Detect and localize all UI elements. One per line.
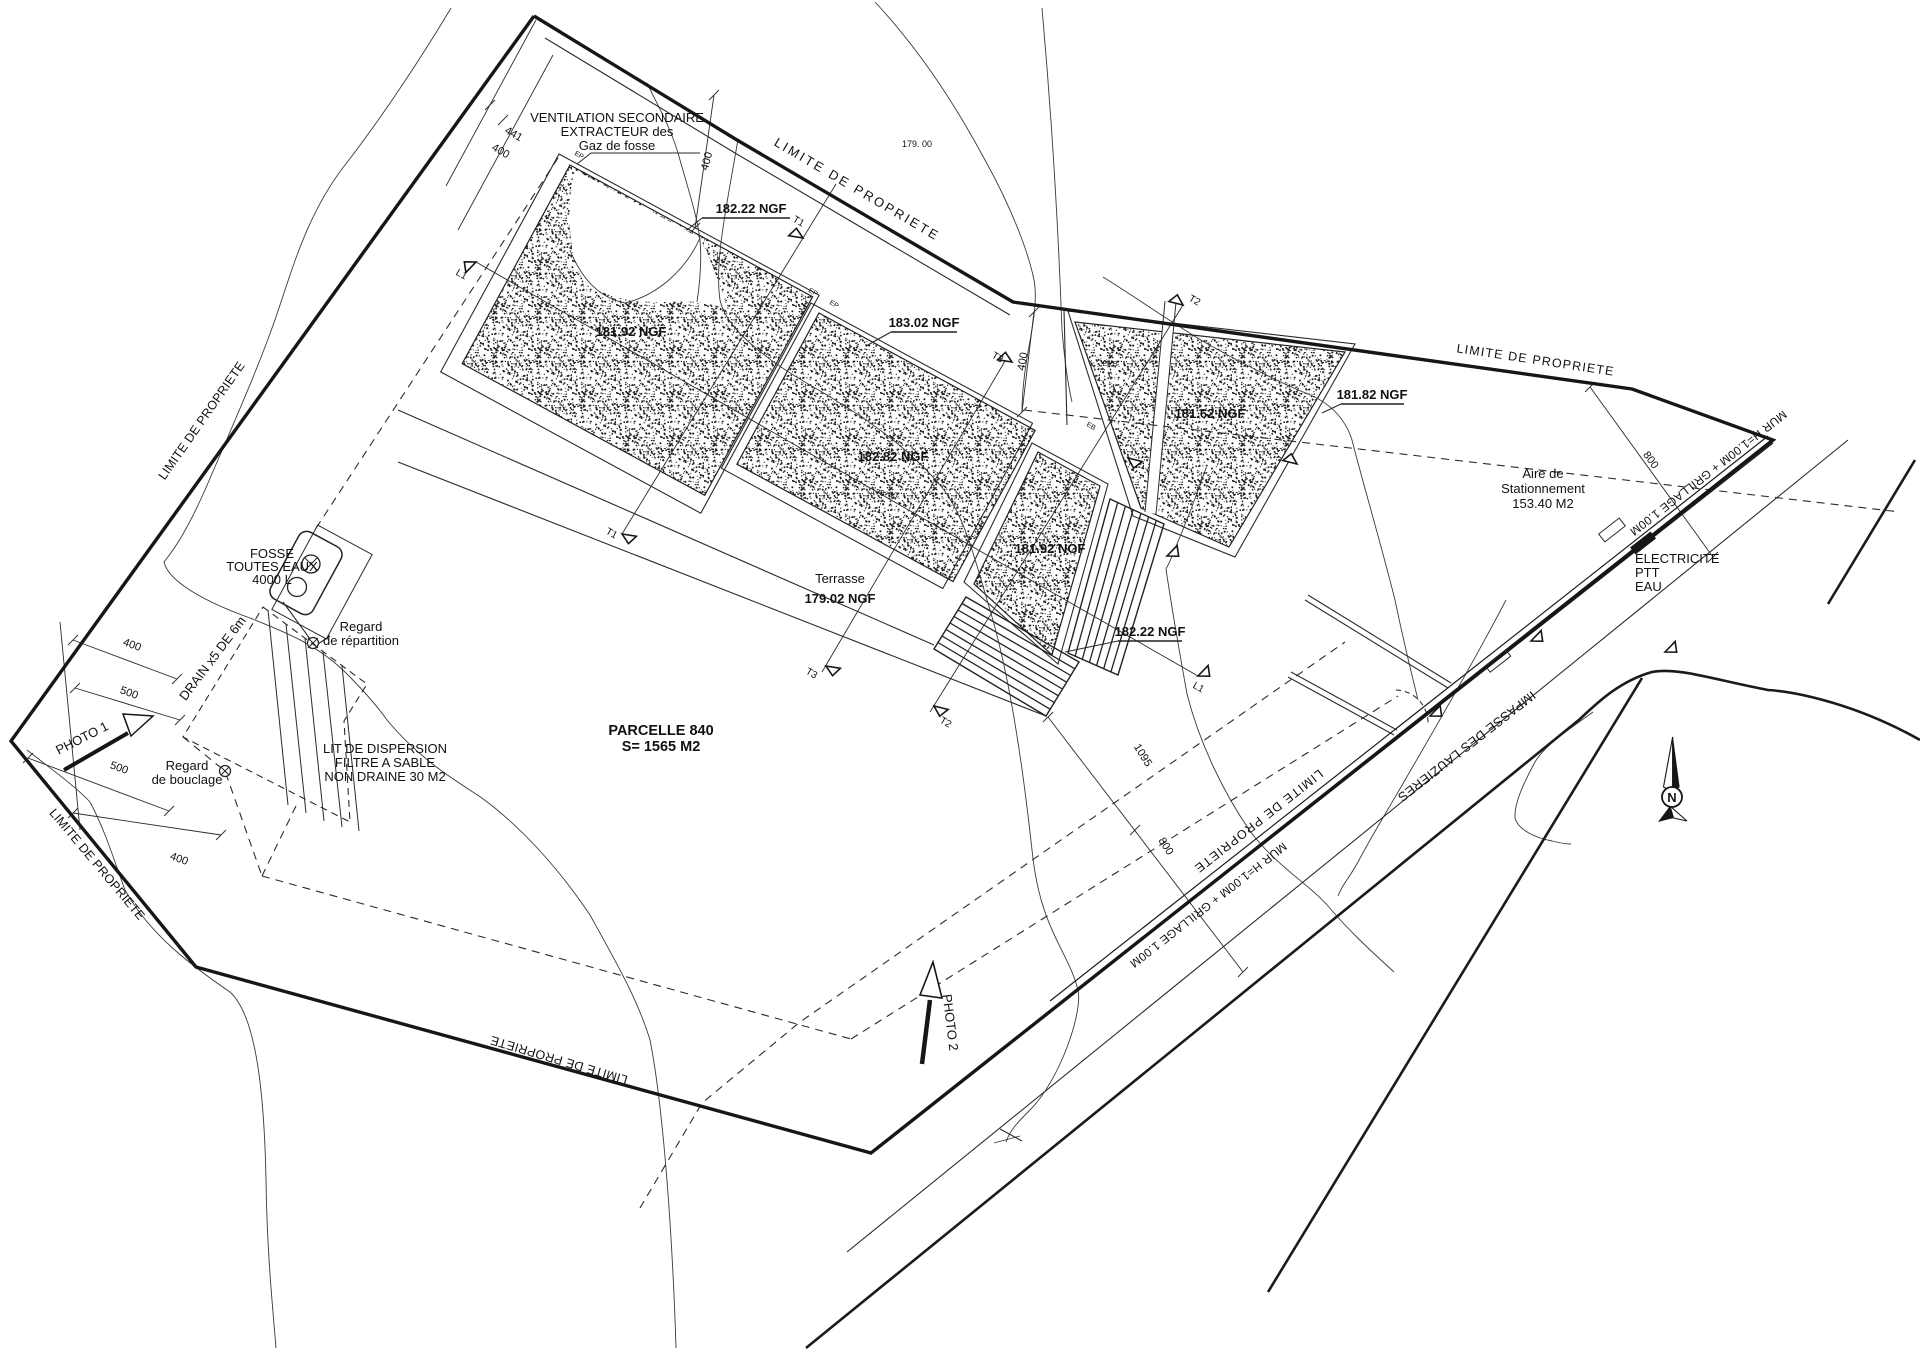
svg-text:183.02 NGF: 183.02 NGF [889, 315, 960, 330]
svg-text:Ep B: Ep B [1102, 361, 1118, 368]
svg-text:179. 00: 179. 00 [902, 139, 932, 149]
svg-text:N: N [1667, 790, 1676, 805]
svg-text:182.22 NGF: 182.22 NGF [716, 201, 787, 216]
svg-text:153.40 M2: 153.40 M2 [1512, 496, 1573, 511]
svg-text:181.92 NGF: 181.92 NGF [1015, 541, 1086, 556]
svg-text:EAU: EAU [1635, 579, 1662, 594]
svg-text:FILTRE A SABLE: FILTRE A SABLE [335, 755, 436, 770]
svg-text:de bouclage: de bouclage [152, 772, 223, 787]
svg-text:181.82 NGF: 181.82 NGF [1337, 387, 1408, 402]
svg-text:de répartition: de répartition [323, 633, 399, 648]
svg-text:181.62 NGF: 181.62 NGF [1175, 406, 1246, 421]
svg-text:182.22 NGF: 182.22 NGF [1115, 624, 1186, 639]
svg-text:VENTILATION SECONDAIRE: VENTILATION SECONDAIRE [530, 110, 704, 125]
svg-text:Aire de: Aire de [1522, 466, 1563, 481]
svg-text:EXTRACTEUR des: EXTRACTEUR des [561, 124, 674, 139]
svg-text:Gaz de fosse: Gaz de fosse [579, 138, 656, 153]
svg-text:Terrasse: Terrasse [815, 571, 865, 586]
svg-text:PARCELLE 840: PARCELLE 840 [608, 723, 713, 739]
svg-text:LIT DE DISPERSION: LIT DE DISPERSION [323, 741, 447, 756]
svg-text:4000 L: 4000 L [252, 572, 292, 587]
svg-text:PTT: PTT [1635, 565, 1660, 580]
svg-text:Regard: Regard [340, 619, 383, 634]
svg-text:181.92 NGF: 181.92 NGF [596, 324, 667, 339]
svg-text:182.82 NGF: 182.82 NGF [858, 449, 929, 464]
svg-text:NON DRAINE 30 M2: NON DRAINE 30 M2 [324, 769, 445, 784]
svg-text:179.02 NGF: 179.02 NGF [805, 591, 876, 606]
svg-text:Stationnement: Stationnement [1501, 481, 1585, 496]
svg-text:ELECTRICITE: ELECTRICITE [1635, 551, 1720, 566]
svg-text:S= 1565 M2: S= 1565 M2 [622, 739, 701, 755]
svg-text:Regard: Regard [166, 758, 209, 773]
